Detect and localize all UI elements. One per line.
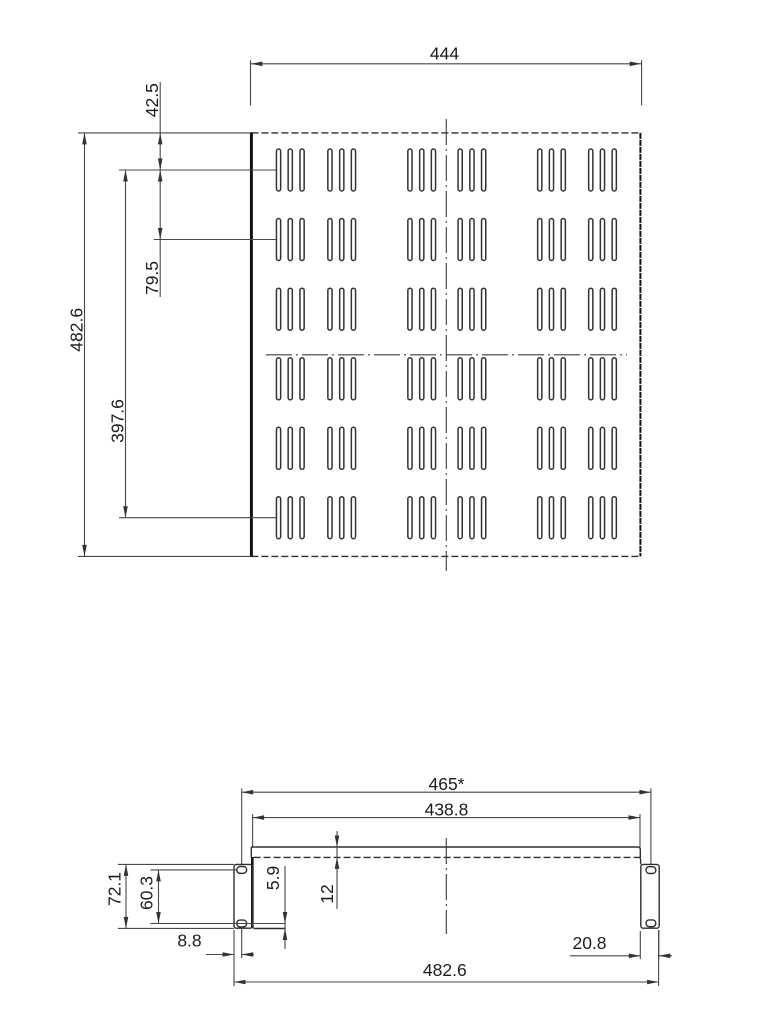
svg-text:482.6: 482.6 <box>423 960 467 980</box>
svg-text:5.9: 5.9 <box>263 866 283 890</box>
svg-text:8.8: 8.8 <box>177 931 201 951</box>
svg-text:438.8: 438.8 <box>425 800 469 820</box>
svg-text:397.6: 397.6 <box>107 399 127 443</box>
svg-text:72.1: 72.1 <box>104 872 124 906</box>
svg-text:20.8: 20.8 <box>572 933 606 953</box>
svg-text:465*: 465* <box>428 774 464 794</box>
svg-text:12: 12 <box>317 884 337 903</box>
svg-text:42.5: 42.5 <box>142 83 162 117</box>
svg-text:60.3: 60.3 <box>137 876 157 910</box>
svg-text:444: 444 <box>430 43 459 63</box>
svg-text:79.5: 79.5 <box>142 261 162 295</box>
svg-text:482.6: 482.6 <box>67 308 87 352</box>
